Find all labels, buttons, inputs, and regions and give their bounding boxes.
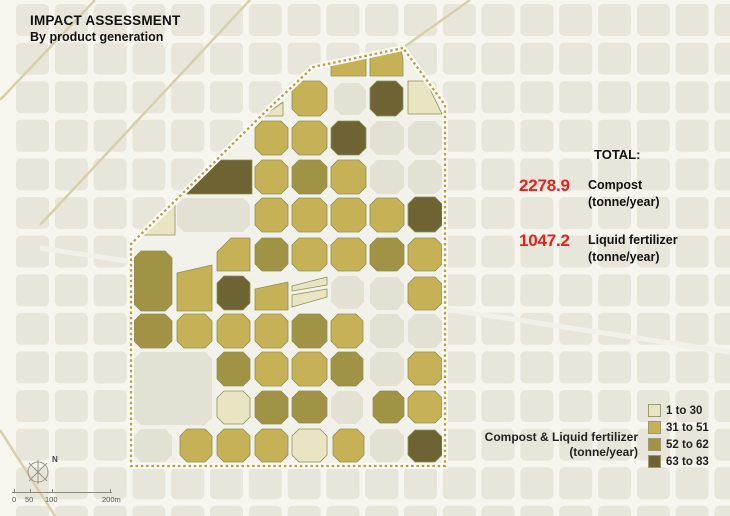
total-liquid-label: Liquid fertilizer (tonne/year) <box>588 232 678 266</box>
impact-block <box>255 352 288 386</box>
impact-block <box>331 352 363 386</box>
legend-swatch <box>648 421 661 434</box>
legend-item: 31 to 51 <box>648 419 709 436</box>
title-block: IMPACT ASSESSMENT By product generation <box>30 13 180 44</box>
impact-block <box>255 121 288 155</box>
impact-block <box>408 197 442 232</box>
impact-block <box>408 277 442 310</box>
impact-block <box>255 391 288 424</box>
legend-swatch <box>648 404 661 417</box>
legend-caption: Compost & Liquid fertilizer (tonne/year) <box>458 430 638 460</box>
district-building <box>134 352 212 425</box>
impact-block <box>217 429 250 462</box>
page-subtitle: By product generation <box>30 30 180 44</box>
district-building <box>408 160 442 194</box>
impact-block <box>134 314 172 348</box>
impact-block <box>408 430 442 462</box>
impact-block <box>370 81 403 116</box>
impact-block <box>331 238 366 271</box>
impact-block <box>331 160 366 194</box>
north-arrow: N <box>24 455 64 491</box>
district-building <box>370 429 404 462</box>
district-building <box>408 314 442 348</box>
district-building <box>370 352 404 386</box>
impact-block <box>177 265 212 311</box>
legend-item: 1 to 30 <box>648 402 709 419</box>
legend-class-label: 63 to 83 <box>666 456 709 468</box>
impact-block <box>292 429 327 462</box>
impact-block <box>217 314 250 348</box>
impact-block <box>217 352 250 386</box>
total-liquid-fertilizer: 1047.2 Liquid fertilizer (tonne/year) <box>519 231 719 271</box>
district-building <box>370 160 404 194</box>
legend-swatch <box>648 438 661 451</box>
impact-block <box>217 391 250 424</box>
total-compost-label: Compost (tonne/year) <box>588 177 660 211</box>
impact-block <box>292 391 327 423</box>
impact-block <box>408 391 442 423</box>
total-compost: 2278.9 Compost (tonne/year) <box>519 176 719 216</box>
district-building <box>408 121 442 155</box>
district-building <box>370 314 404 348</box>
legend-item: 63 to 83 <box>648 453 709 470</box>
impact-block <box>217 276 250 310</box>
scale-label-50: 50 <box>25 495 33 504</box>
impact-block <box>370 198 404 232</box>
impact-block <box>255 314 288 348</box>
district-building <box>370 277 404 310</box>
impact-block <box>370 238 404 271</box>
impact-block <box>255 429 288 462</box>
impact-block <box>177 314 212 348</box>
district-building <box>331 276 364 309</box>
impact-block <box>331 198 366 232</box>
impact-block <box>255 238 288 271</box>
impact-block <box>408 352 442 385</box>
impact-block <box>292 352 327 386</box>
impact-block <box>292 160 327 194</box>
impact-block <box>331 314 363 348</box>
district-building <box>370 121 404 155</box>
impact-block <box>333 429 364 462</box>
district-building <box>334 83 366 115</box>
impact-block <box>292 81 327 116</box>
impact-block <box>292 121 327 155</box>
impact-block <box>373 391 404 423</box>
legend: 1 to 3031 to 5152 to 6263 to 83 <box>648 402 709 470</box>
legend-swatch <box>648 455 661 468</box>
legend-class-label: 1 to 30 <box>666 405 702 417</box>
total-compost-value: 2278.9 <box>519 176 570 196</box>
page-title: IMPACT ASSESSMENT <box>30 13 180 28</box>
impact-block <box>292 198 327 232</box>
impact-block <box>292 238 327 271</box>
total-liquid-value: 1047.2 <box>519 231 570 251</box>
impact-block <box>331 121 366 155</box>
totals-heading: TOTAL: <box>594 147 640 162</box>
impact-block <box>292 314 327 348</box>
scale-bar: 0 50 100 200m <box>12 488 122 504</box>
north-label: N <box>52 455 58 464</box>
district-building <box>331 391 363 424</box>
legend-class-label: 31 to 51 <box>666 422 709 434</box>
scale-label-0: 0 <box>12 495 16 504</box>
impact-assessment-figure: IMPACT ASSESSMENT By product generation … <box>0 0 730 516</box>
impact-block <box>255 160 288 194</box>
impact-block <box>180 429 212 462</box>
impact-block <box>408 238 442 271</box>
scale-label-200: 200m <box>102 495 121 504</box>
legend-class-label: 52 to 62 <box>666 439 709 451</box>
legend-item: 52 to 62 <box>648 436 709 453</box>
impact-block <box>134 251 172 311</box>
impact-block <box>255 198 288 232</box>
district-building <box>177 198 250 232</box>
scale-label-100: 100 <box>45 495 58 504</box>
district-building <box>134 429 172 462</box>
compass-icon <box>24 455 64 491</box>
